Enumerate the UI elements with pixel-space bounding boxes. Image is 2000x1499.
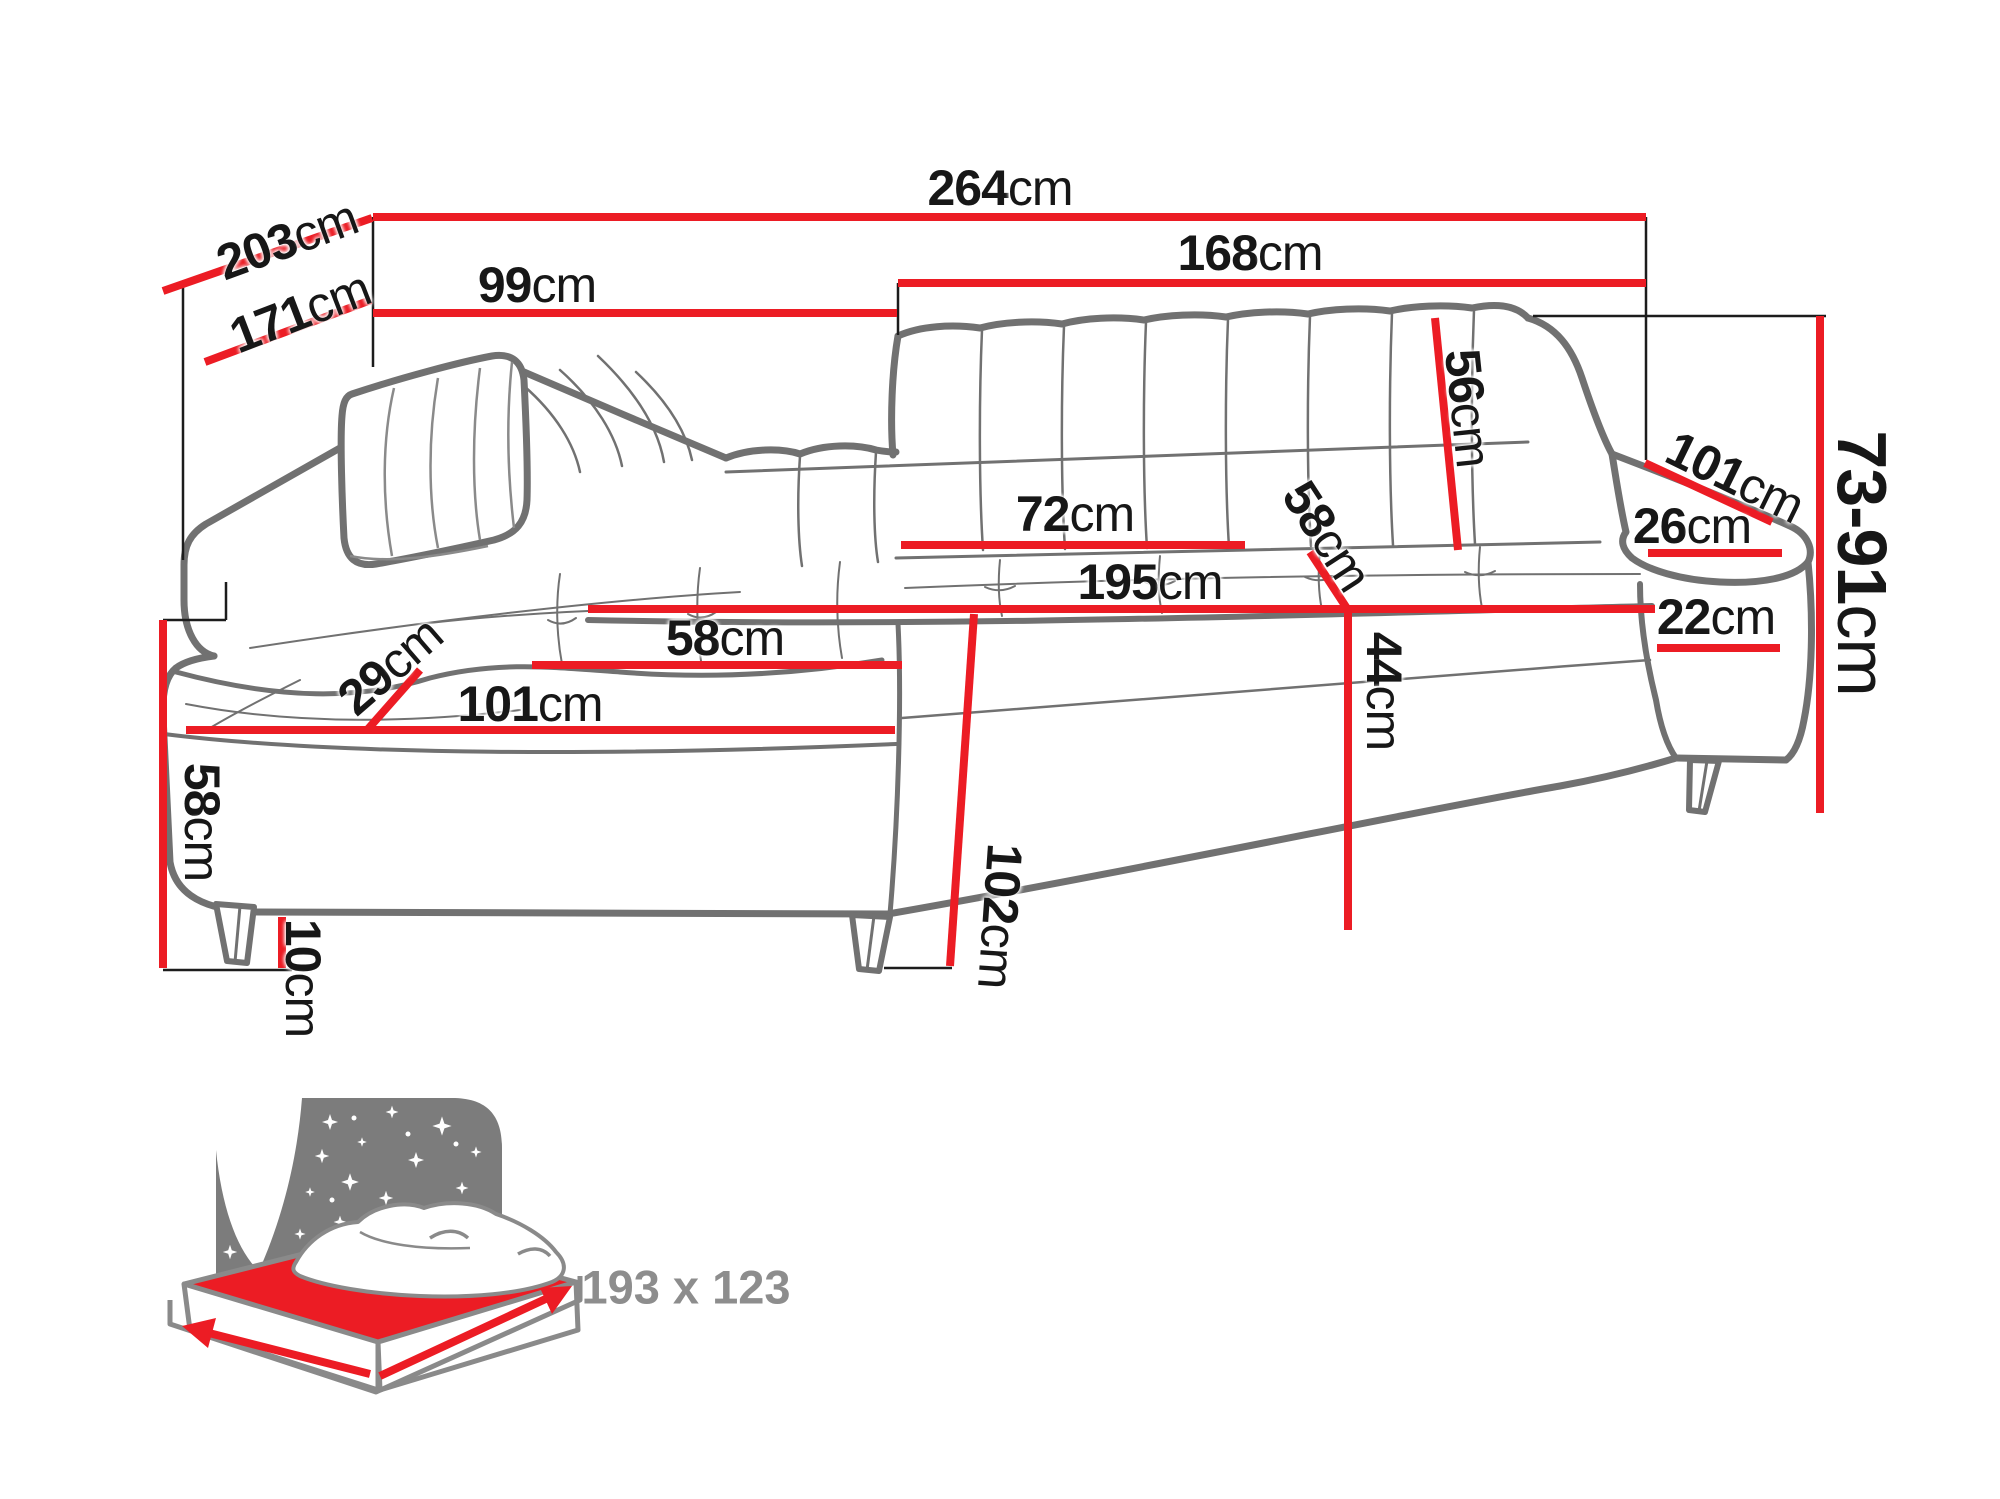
headrest-pillow: [341, 355, 527, 564]
dim-seat-depth-72: 72cm: [1016, 489, 1134, 539]
dim-seatheight-44: 44cm: [1359, 632, 1409, 750]
dim-width-99: 99cm: [478, 260, 596, 310]
dim-height-58: 58cm: [177, 763, 227, 881]
dim-armrest-22: 22cm: [1657, 592, 1775, 642]
sleeping-surface-size: 193 x 123: [581, 1264, 790, 1311]
dim-height-range-73-91: 73-91cm: [1827, 430, 1897, 695]
dim-chaise-58: 58cm: [666, 613, 784, 663]
dim-seat-width-195: 195cm: [1077, 557, 1222, 607]
dim-total-width: 264cm: [927, 163, 1072, 213]
dim-armrest-26: 26cm: [1633, 501, 1751, 551]
bed-sleeping-icon: [0, 1098, 580, 1392]
dim-width-168: 168cm: [1177, 228, 1322, 278]
dim-leg-10: 10cm: [278, 919, 328, 1037]
dim-backrest-56: 56cm: [1437, 347, 1499, 470]
dim-chaise-length-102: 102cm: [970, 842, 1030, 990]
sofa-dimension-diagram: 264cm 203cm 171cm 99cm 168cm 56cm 72cm 5…: [0, 0, 2000, 1499]
sofa-legs: [216, 760, 1719, 971]
dim-chaise-101: 101cm: [457, 679, 602, 729]
